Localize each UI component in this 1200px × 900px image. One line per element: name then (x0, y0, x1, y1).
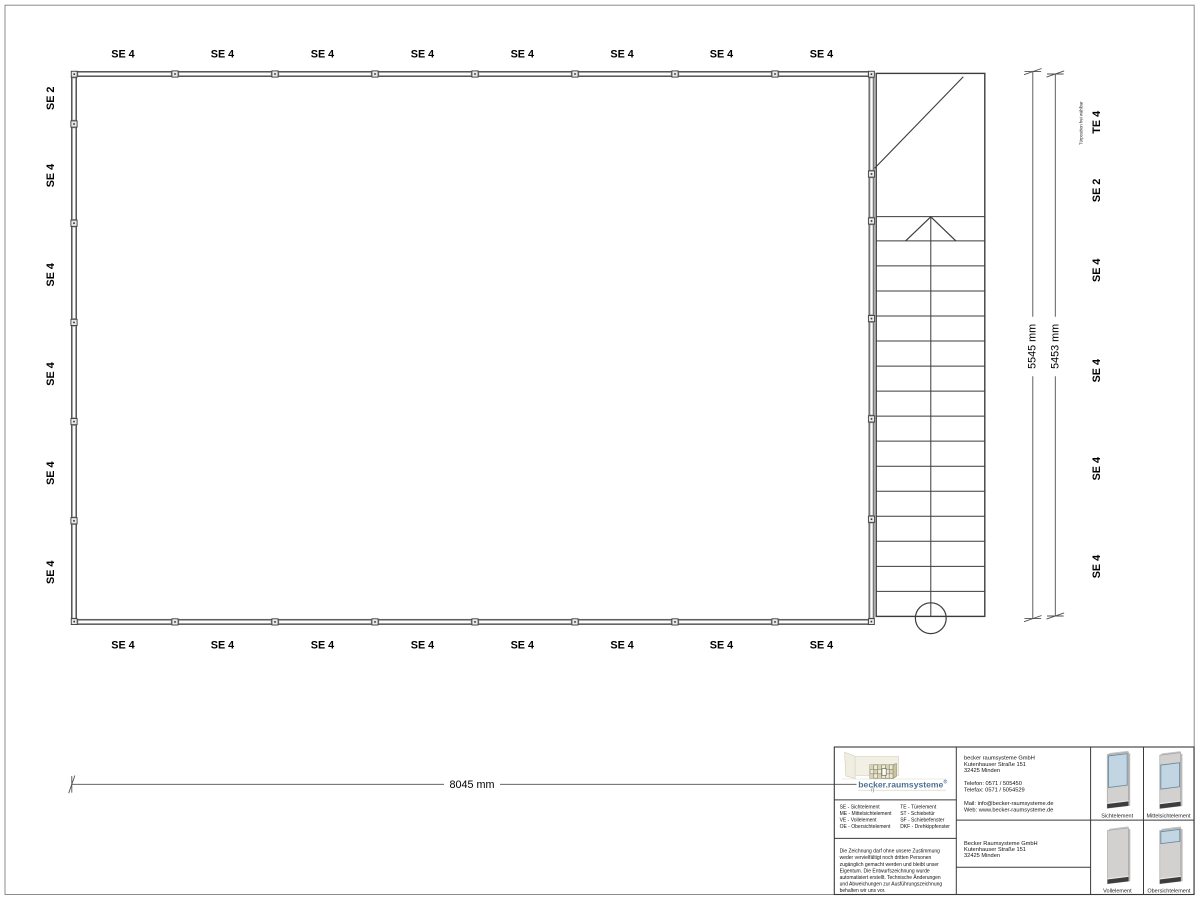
svg-text:TE 4: TE 4 (1091, 111, 1103, 134)
svg-text:ST - Schiebetür: ST - Schiebetür (900, 811, 935, 817)
svg-text:und Abweichungen zur Ausführun: und Abweichungen zur Ausführungszeichnun… (840, 882, 943, 888)
svg-text:becker raumsysteme GmbH: becker raumsysteme GmbH (964, 756, 1035, 762)
svg-text:SE 4: SE 4 (710, 640, 733, 652)
svg-text:SE 4: SE 4 (311, 48, 334, 60)
svg-text:SE 4: SE 4 (45, 461, 57, 484)
svg-text:®: ® (944, 779, 948, 786)
svg-text:Die Zeichnung darf ohne unsere: Die Zeichnung darf ohne unsere Zustimmun… (840, 849, 941, 855)
svg-text:Telefax: 0571 / 5054529: Telefax: 0571 / 5054529 (964, 787, 1025, 793)
svg-text:SE 4: SE 4 (511, 48, 534, 60)
svg-text:SE 4: SE 4 (710, 48, 733, 60)
svg-text:SE 4: SE 4 (610, 48, 633, 60)
svg-text:5545 mm: 5545 mm (1026, 324, 1038, 369)
svg-text:Mittelsichtelement: Mittelsichtelement (1146, 814, 1190, 820)
svg-text:SE 4: SE 4 (1091, 457, 1103, 480)
svg-text:SE 4: SE 4 (211, 640, 234, 652)
svg-text:Obersichtelement: Obersichtelement (1147, 888, 1191, 894)
svg-text:Kutenhauser Straße 151: Kutenhauser Straße 151 (964, 847, 1026, 853)
svg-text:SE 4: SE 4 (411, 48, 434, 60)
svg-text:SE 4: SE 4 (311, 640, 334, 652)
svg-text:Telefon: 0571 / 505450: Telefon: 0571 / 505450 (964, 781, 1022, 787)
svg-text:SE 4: SE 4 (1091, 359, 1103, 382)
svg-text:OE - Obersichtelement: OE - Obersichtelement (840, 824, 891, 830)
svg-text:SE 2: SE 2 (45, 87, 57, 110)
svg-text:SE 4: SE 4 (810, 48, 833, 60)
svg-text:Türposition frei wählbar: Türposition frei wählbar (1079, 101, 1084, 145)
svg-text:SE 4: SE 4 (111, 48, 134, 60)
svg-text:DKF - Drehkippfenster: DKF - Drehkippfenster (900, 824, 950, 830)
svg-text:SE 4: SE 4 (511, 640, 534, 652)
svg-text:SE 4: SE 4 (1091, 555, 1103, 578)
svg-text:32425 Minden: 32425 Minden (964, 768, 1000, 774)
svg-text:Mail: info@becker-raumsysteme.: Mail: info@becker-raumsysteme.de (964, 801, 1054, 807)
svg-text:SE 4: SE 4 (111, 640, 134, 652)
svg-text:weder vervielfältigt noch drit: weder vervielfältigt noch dritten Person… (840, 855, 932, 861)
svg-text:SE 4: SE 4 (1091, 259, 1103, 282)
svg-text:Kutenhauser Straße 151: Kutenhauser Straße 151 (964, 762, 1026, 768)
svg-text:Eigentum. Die Entwurfszeichnun: Eigentum. Die Entwurfszeichnung wurde (840, 868, 930, 874)
svg-text:ME - Mittelsichtelement: ME - Mittelsichtelement (840, 811, 893, 817)
svg-text:SE 4: SE 4 (610, 640, 633, 652)
svg-text:SE 4: SE 4 (411, 640, 434, 652)
svg-text:32425 Minden: 32425 Minden (964, 853, 1000, 859)
svg-text:automatisiert erstellt. Techni: automatisiert erstellt. Technische Änder… (840, 874, 941, 881)
svg-text:Becker Raumsysteme GmbH: Becker Raumsysteme GmbH (964, 841, 1038, 847)
svg-text:SE 4: SE 4 (45, 263, 57, 286)
svg-text:SF - Schiebefenster: SF - Schiebefenster (900, 817, 945, 823)
svg-text:/): /) (871, 787, 874, 793)
svg-text:Sichtelement: Sichtelement (1101, 814, 1133, 820)
svg-text:SE 4: SE 4 (810, 640, 833, 652)
svg-text:Vollelement: Vollelement (1103, 888, 1132, 894)
svg-text:SE 4: SE 4 (45, 561, 57, 584)
svg-text:SE - Sichtelement: SE - Sichtelement (840, 804, 881, 810)
svg-text:5453 mm: 5453 mm (1050, 324, 1062, 369)
svg-text:TE - Türelement: TE - Türelement (900, 804, 937, 810)
svg-text:SE 2: SE 2 (1091, 179, 1103, 202)
svg-text:SE 4: SE 4 (211, 48, 234, 60)
svg-text:behalten wir uns vor.: behalten wir uns vor. (840, 888, 886, 894)
svg-text:SE 4: SE 4 (45, 362, 57, 385)
svg-text:zugänglich gemacht werden und: zugänglich gemacht werden und bleibt uns… (840, 862, 940, 868)
svg-text:VE - Vollelement: VE - Vollelement (840, 817, 878, 823)
svg-text:Web: www.becker-raumsysteme.de: Web: www.becker-raumsysteme.de (964, 807, 1053, 813)
svg-text:SE 4: SE 4 (45, 164, 57, 187)
svg-text:8045 mm: 8045 mm (449, 779, 494, 791)
